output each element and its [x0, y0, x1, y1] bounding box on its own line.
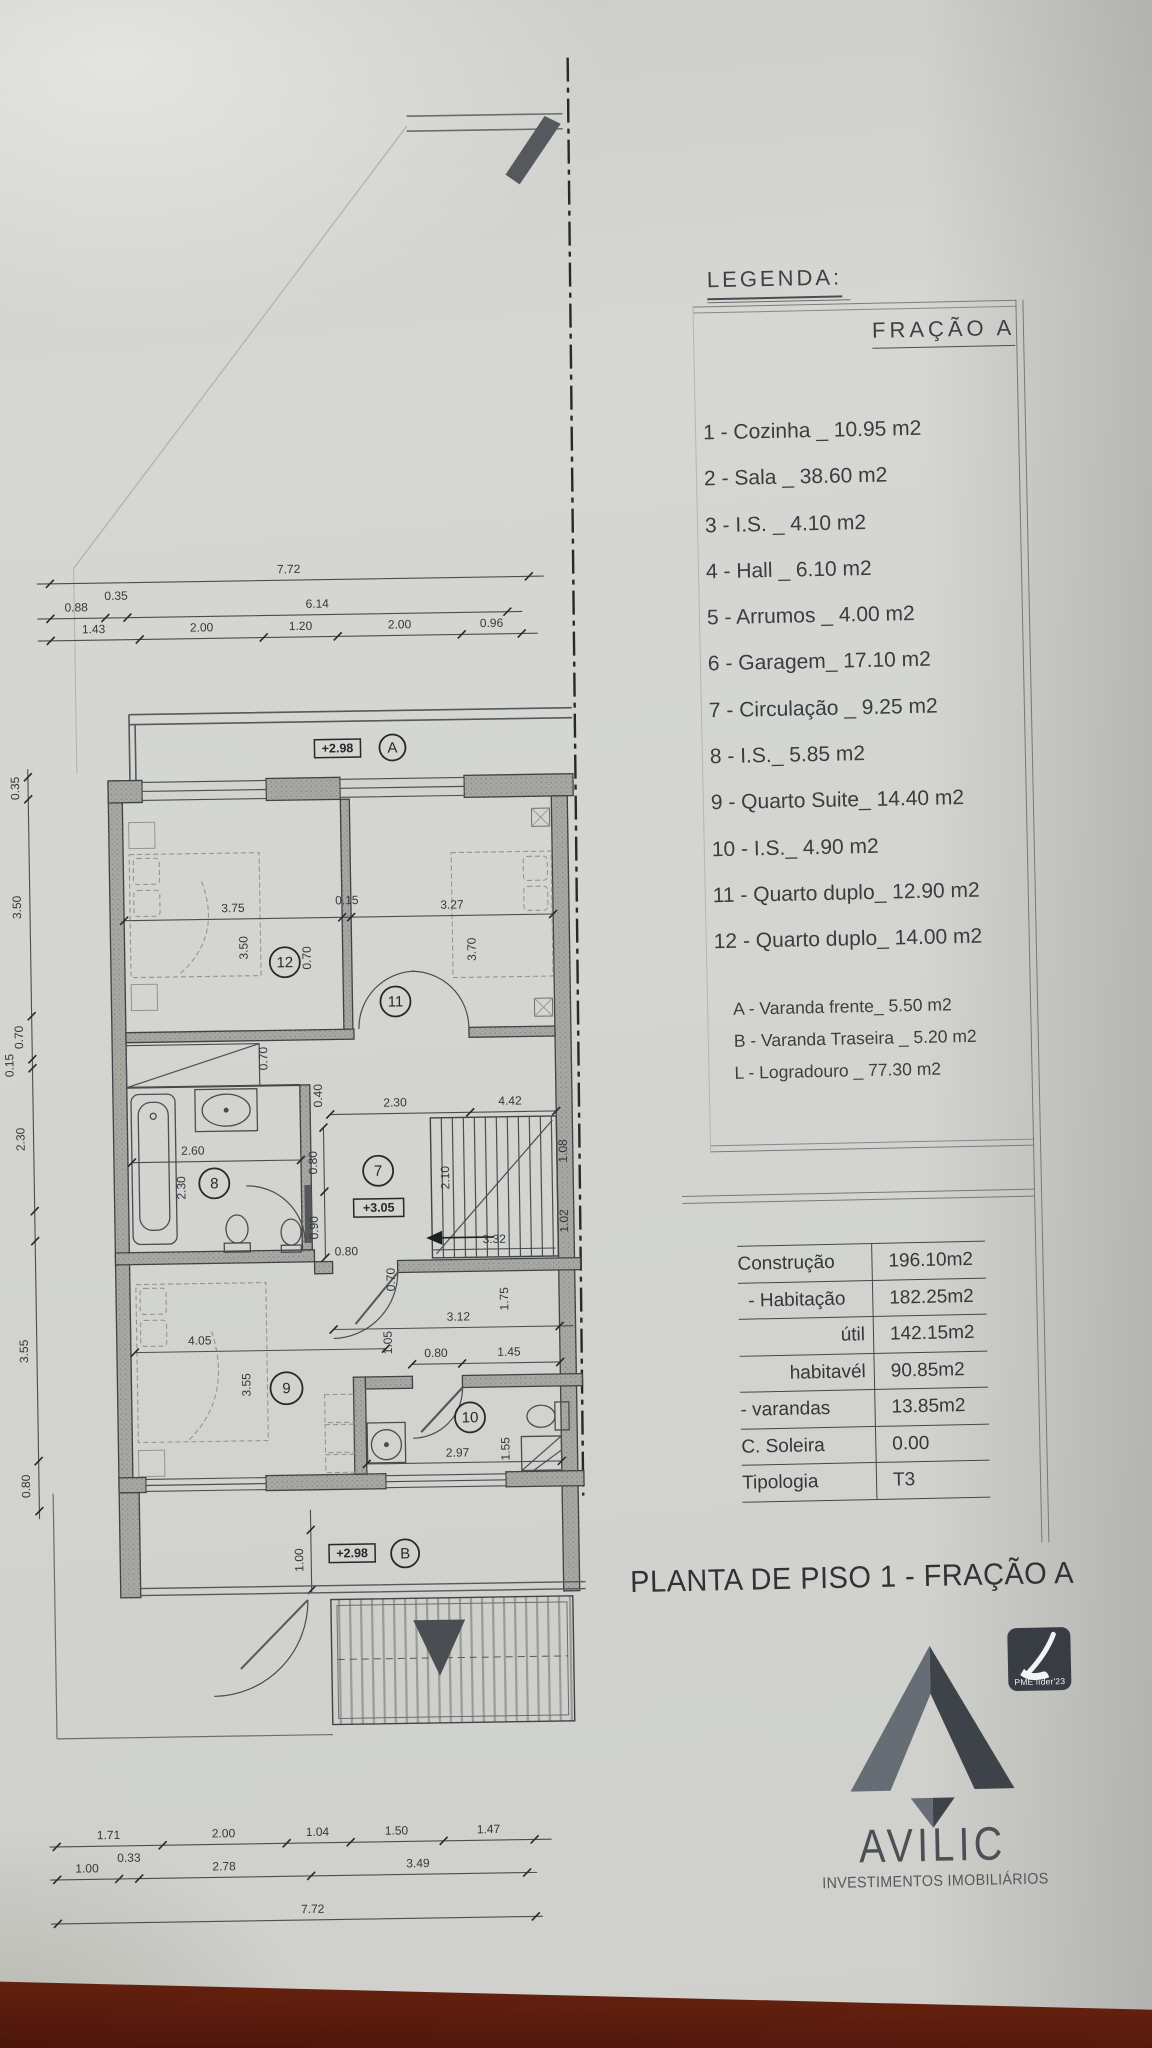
areas-row: útil 142.15m2: [739, 1315, 988, 1357]
areas-value: 90.85m2: [874, 1352, 965, 1389]
pme-lider-badge: PME líder'23: [1007, 1627, 1071, 1691]
areas-row: Tipologia T3: [742, 1461, 991, 1503]
areas-table: Construção 196.10m2 - Habitação 182.25m2…: [737, 1241, 990, 1503]
sheet-right-panel: LEGENDA: FRAÇÃO A 1 - Cozinha _ 10.95 m2…: [0, 0, 1152, 2048]
legend-item: 10 - I.S._ 4.90 m2: [711, 820, 1022, 873]
legend-annex-item: A - Varanda frente_ 5.50 m2: [733, 988, 976, 1025]
areas-row: - varandas 13.85m2: [740, 1388, 989, 1430]
avilic-logo-icon: [839, 1640, 1023, 1834]
legend-item: 7 - Circulação _ 9.25 m2: [708, 682, 1019, 735]
areas-value: T3: [877, 1462, 916, 1498]
areas-row: - Habitação 182.25m2: [738, 1278, 987, 1320]
legend-items: 1 - Cozinha _ 10.95 m2 2 - Sala _ 38.60 …: [703, 404, 1025, 966]
legend-item: 9 - Quarto Suite_ 14.40 m2: [710, 774, 1021, 827]
floorplan-photo: 7.72 0.88 0.35 6.14 1.43 2.00 1.20 2.00 …: [0, 0, 1152, 2048]
legend-annex-item: L - Logradouro _ 77.30 m2: [734, 1052, 977, 1089]
areas-value: 142.15m2: [874, 1315, 975, 1353]
legend-item: 1 - Cozinha _ 10.95 m2: [703, 404, 1014, 457]
legend-item: 4 - Hall _ 6.10 m2: [706, 543, 1017, 596]
legend-annex-item: B - Varanda Traseira _ 5.20 m2: [733, 1020, 976, 1057]
areas-row: habitavél 90.85m2: [739, 1351, 988, 1393]
badge-caption: PME líder'23: [1008, 1676, 1071, 1687]
areas-label: C. Soleira: [741, 1426, 877, 1464]
areas-row: Construção 196.10m2: [737, 1242, 986, 1284]
areas-label: Tipologia: [742, 1463, 878, 1501]
areas-label: - Habitação: [738, 1281, 874, 1319]
areas-value: 182.25m2: [873, 1278, 974, 1316]
legend-heading: LEGENDA:: [707, 264, 843, 300]
legend-item: 6 - Garagem_ 17.10 m2: [707, 635, 1018, 688]
legend-item: 5 - Arrumos _ 4.00 m2: [706, 589, 1017, 642]
legend-item: 8 - I.S._ 5.85 m2: [709, 728, 1020, 781]
areas-row: C. Soleira 0.00: [741, 1424, 990, 1466]
table-box-top: [682, 1189, 1034, 1204]
areas-label: Construção: [737, 1244, 873, 1282]
areas-value: 0.00: [876, 1425, 930, 1462]
legend-item: 12 - Quarto duplo_ 14.00 m2: [713, 913, 1024, 966]
areas-value: 196.10m2: [872, 1242, 973, 1280]
logo-name: AVILIC: [831, 1815, 1034, 1874]
areas-label: habitavél: [739, 1353, 875, 1391]
legend-item: 11 - Quarto duplo_ 12.90 m2: [712, 867, 1023, 920]
areas-value: 13.85m2: [875, 1388, 966, 1425]
areas-label: útil: [739, 1317, 875, 1355]
areas-label: - varandas: [740, 1390, 876, 1428]
legend-item: 2 - Sala _ 38.60 m2: [704, 450, 1015, 503]
legend-item: 3 - I.S. _ 4.10 m2: [705, 496, 1016, 549]
legend-annex-items: A - Varanda frente_ 5.50 m2 B - Varanda …: [733, 988, 978, 1089]
fraction-title: FRAÇÃO A: [872, 315, 1016, 349]
page-title: PLANTA DE PISO 1 - FRAÇÃO A: [624, 1556, 1081, 1601]
